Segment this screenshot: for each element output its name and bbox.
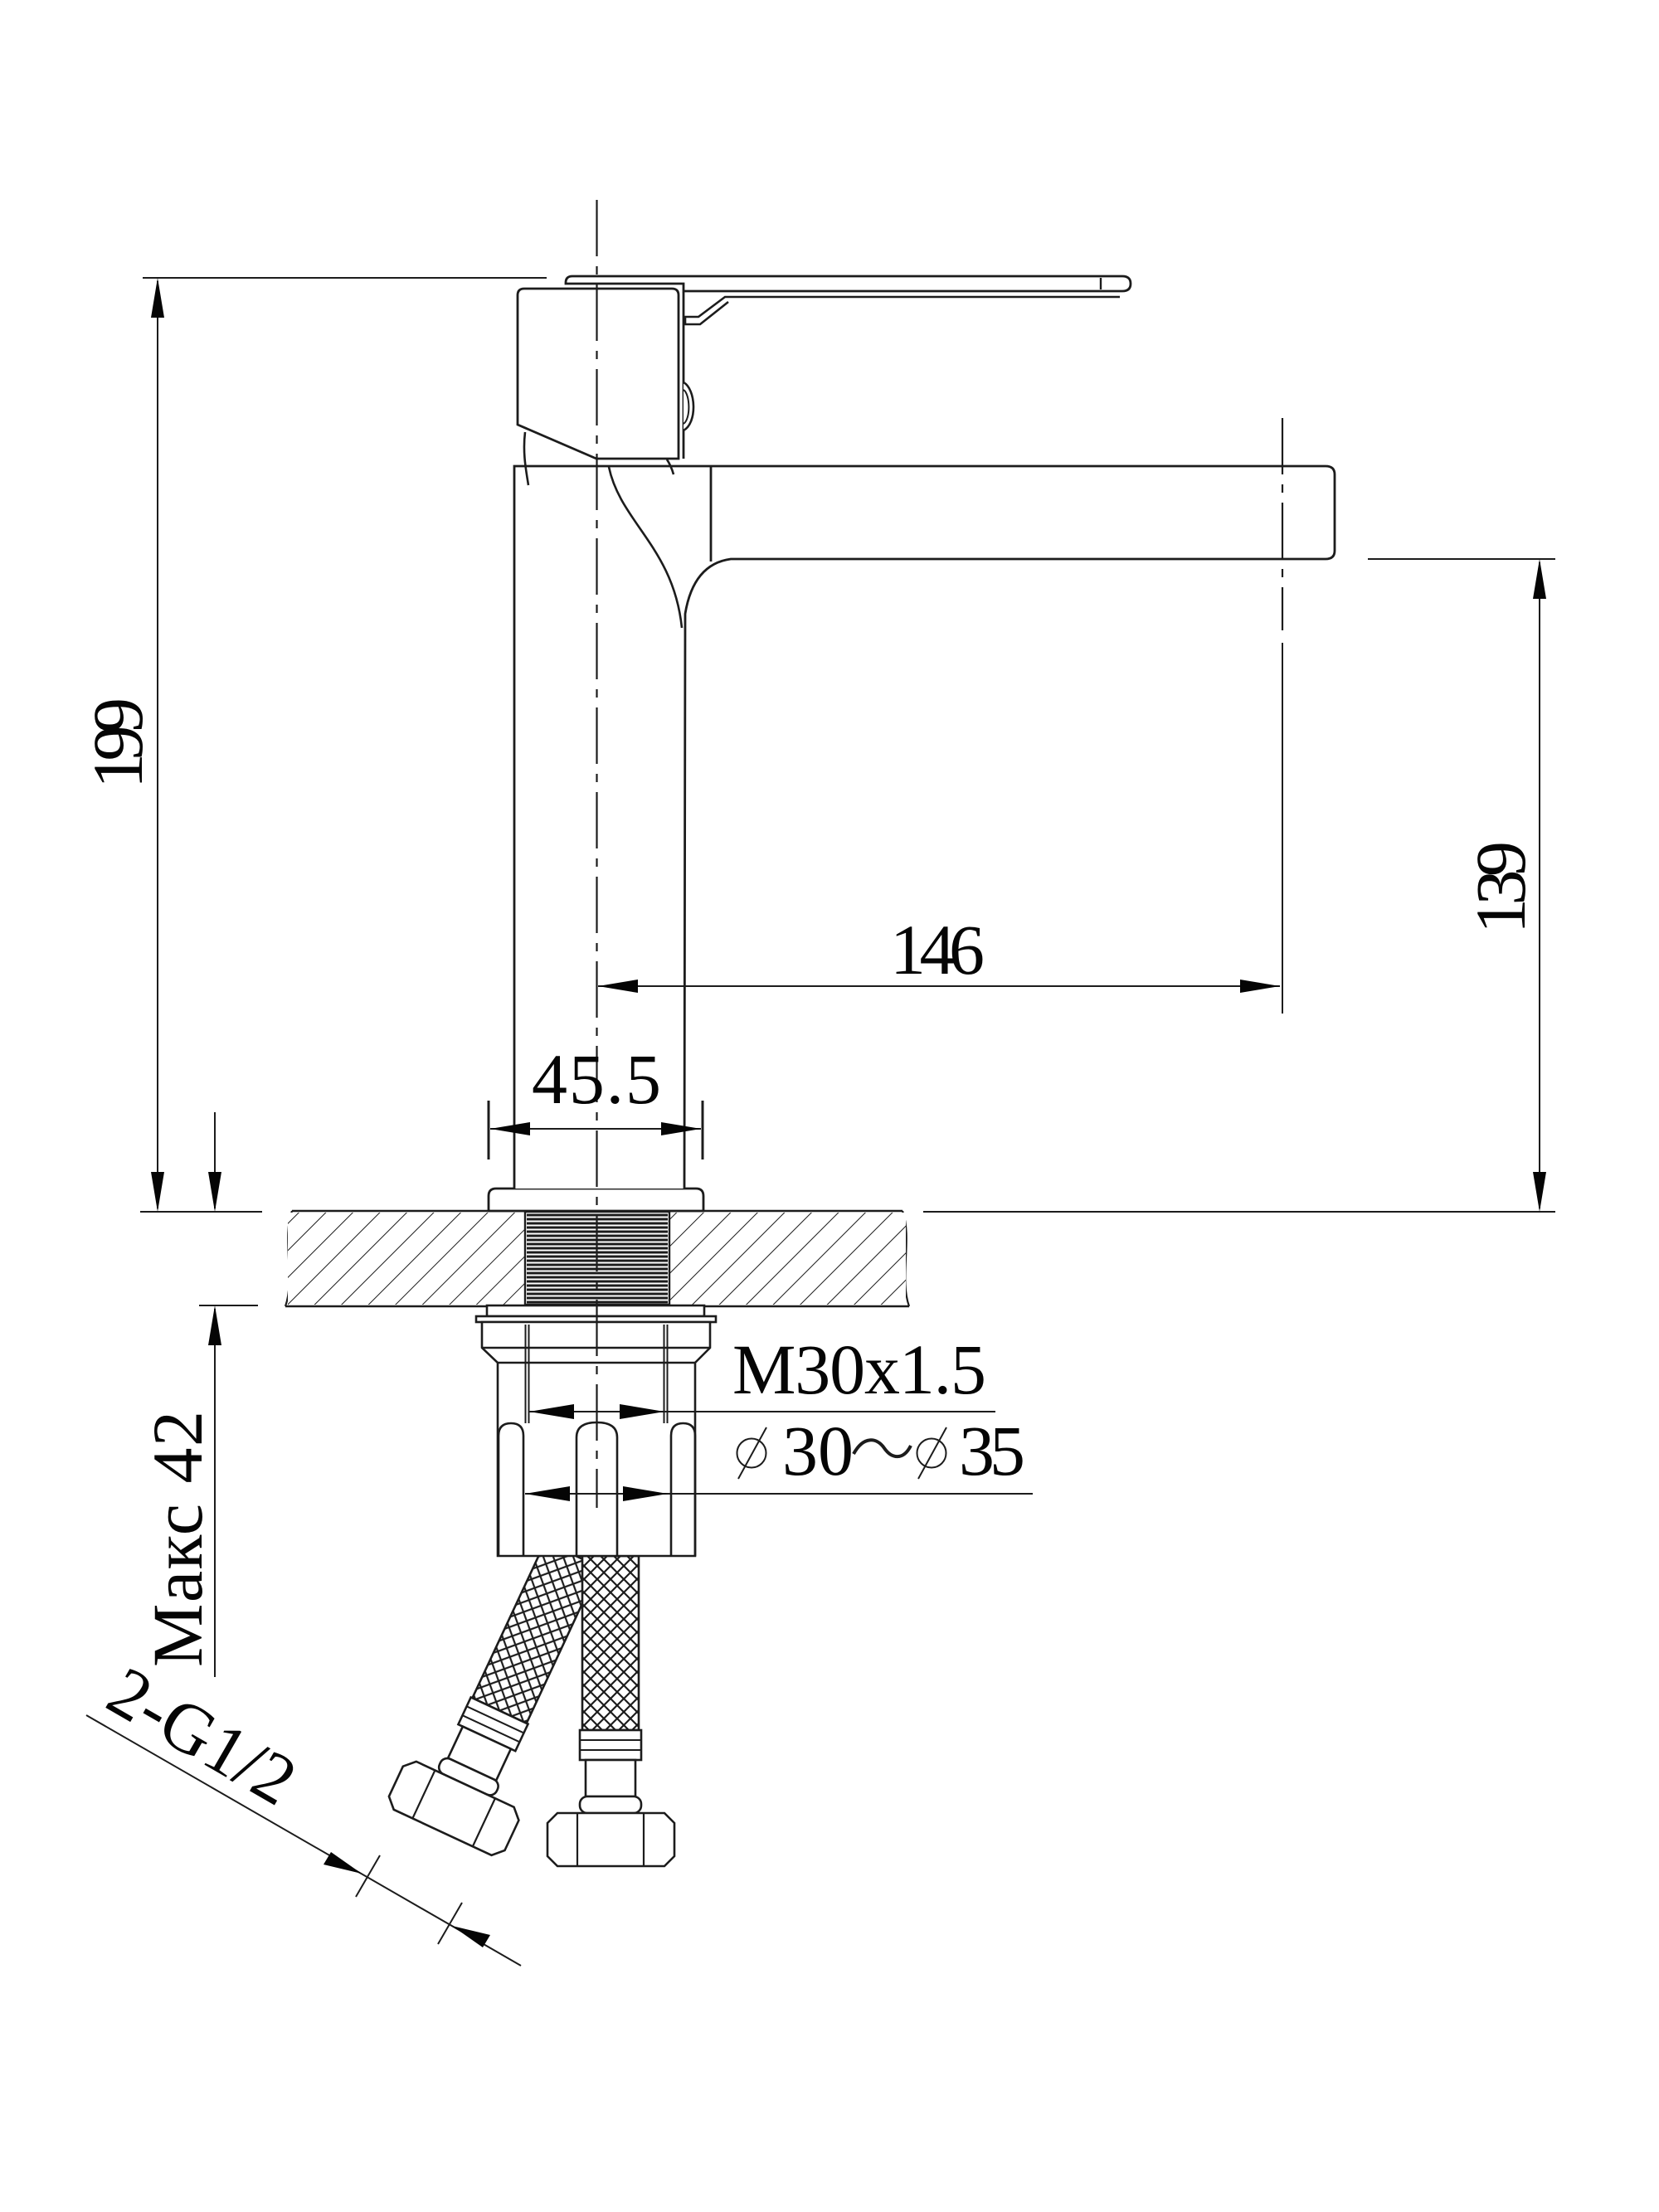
svg-text:M30x1.5: M30x1.5: [732, 1330, 986, 1409]
svg-text:35: 35: [959, 1411, 1025, 1490]
svg-text:30: 30: [782, 1411, 854, 1490]
svg-text:139: 139: [1461, 841, 1540, 934]
svg-text:45.5: 45.5: [532, 1039, 661, 1119]
svg-text:Макс 42: Макс 42: [138, 1411, 217, 1667]
svg-text:146: 146: [890, 910, 985, 989]
svg-text:199: 199: [78, 698, 158, 789]
